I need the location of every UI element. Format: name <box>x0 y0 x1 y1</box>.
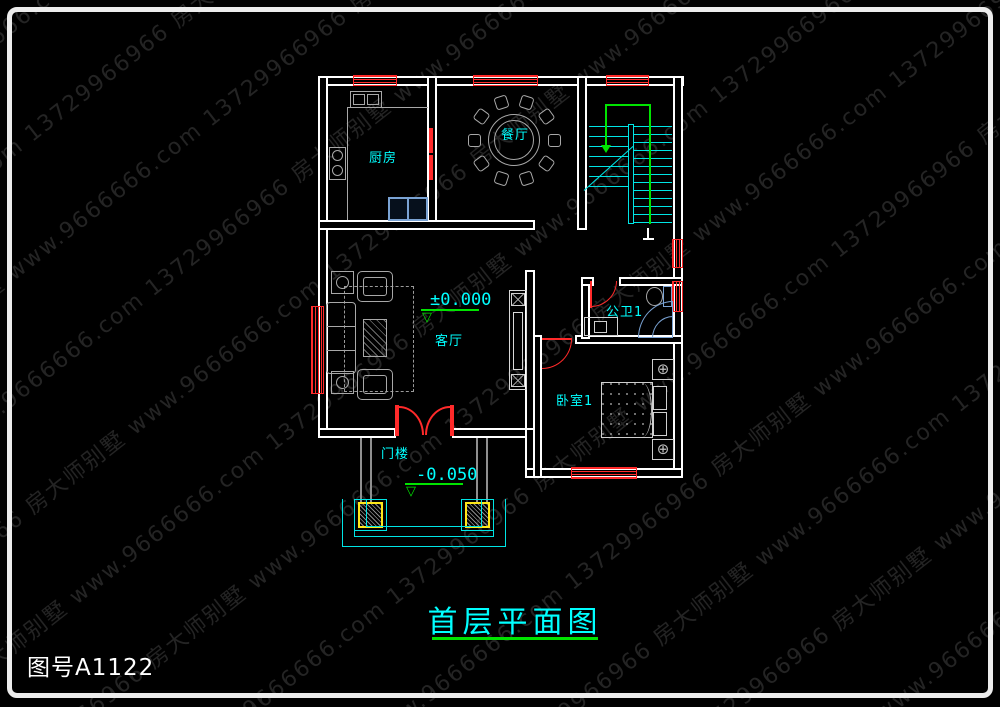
stove-burner <box>332 150 343 161</box>
dining-chair <box>537 107 555 125</box>
bath-vanity-basin <box>594 321 607 333</box>
entrance-door-right-leaf <box>450 405 454 436</box>
porch-column-guide <box>370 438 372 502</box>
dining-chair <box>472 154 490 172</box>
nightstand-lamp: ⊕ <box>652 439 674 460</box>
window-kitchen-top <box>353 75 397 86</box>
wall-kitchen-bottom <box>318 220 535 230</box>
window-bedroom-bottom <box>571 467 637 479</box>
kitchen-sink-basin <box>367 94 379 105</box>
sofa-cushion-line <box>326 326 356 327</box>
dining-chair <box>472 107 490 125</box>
floorplan-canvas: www.9666666.com 13729966966 房大师别墅 www.96… <box>0 0 1000 707</box>
room-label-bedroom: 卧室1 <box>556 390 593 409</box>
stove-burner <box>332 165 343 176</box>
room-label-living: 客厅 <box>435 330 463 349</box>
watermark-text: www.9666666.com 13729966966 房大师别墅 www.96… <box>0 0 893 649</box>
dining-chair <box>518 94 534 110</box>
stair-stringer <box>628 124 634 224</box>
wall-bedroom-left <box>533 335 542 478</box>
elevation-porch-triangle: ▽ <box>406 485 416 498</box>
sofa-cushion-line <box>326 350 356 351</box>
window-stair-top <box>606 75 649 86</box>
nightstand-lamp: ⊕ <box>652 359 674 380</box>
sofa-three-seat <box>326 302 356 374</box>
dining-chair <box>537 154 555 172</box>
stair-handrail-top <box>605 104 651 106</box>
bed-headboard <box>653 386 667 410</box>
drawing-number: 图号A1122 <box>27 648 154 682</box>
door-kitchen-opening <box>429 128 433 153</box>
porch-column-guide <box>360 438 362 502</box>
plant-swirl <box>336 376 349 389</box>
window-dining-top <box>473 75 538 86</box>
bedroom-door-arc <box>542 339 572 369</box>
wall-living-bottom-right <box>452 428 535 438</box>
wall-living-bottom-left <box>318 428 396 438</box>
stair-arrow-head <box>601 145 611 153</box>
armchair-bottom-cushion <box>363 375 387 394</box>
stair-handrail-leftdrop <box>605 104 607 146</box>
kitchen-sink-basin <box>353 94 365 105</box>
kitchen-counter-edge-v <box>347 107 348 220</box>
dining-chair <box>468 134 481 147</box>
entrance-door-right-arc <box>425 406 450 435</box>
watermark-text: www.9666666.com 13729966966 房大师别墅 www.96… <box>157 303 1000 707</box>
room-label-dining: 餐厅 <box>501 124 529 143</box>
window-stair-right <box>672 239 683 268</box>
wall-kitchen-dining-divider <box>427 76 437 230</box>
dining-chair <box>518 170 534 186</box>
dining-chair <box>493 94 509 110</box>
dining-chair <box>548 134 561 147</box>
watermark-text: www.9666666.com 13729966966 房大师别墅 www.96… <box>100 381 1000 707</box>
stair-treads-right <box>634 126 672 225</box>
elevation-porch: -0.050 <box>416 465 477 485</box>
plant-swirl <box>336 276 349 289</box>
drawing-title: 首层平面图 <box>425 597 605 641</box>
border-frame <box>7 7 993 698</box>
watermark-text: www.9666666.com 13729966966 房大师别墅 www.96… <box>0 0 832 479</box>
room-label-kitchen: 厨房 <box>369 147 397 166</box>
dining-chair <box>493 170 509 186</box>
kitchen-fridge-divider <box>407 197 409 221</box>
door-kitchen-opening <box>429 155 433 180</box>
tv-screen <box>513 312 523 370</box>
porch-step <box>342 499 506 547</box>
elevation-living: ±0.000 <box>430 290 491 310</box>
armchair-top-cushion <box>363 277 387 296</box>
window-living-left <box>311 306 324 394</box>
drawing-title-underline <box>432 637 598 640</box>
wall-stairwell-left <box>577 76 587 230</box>
window-bath-right <box>672 281 683 312</box>
stair-up-mark <box>643 238 654 240</box>
stair-handrail-rightdrop <box>649 104 651 224</box>
tv-cabinet-box <box>511 374 525 387</box>
entrance-door-left-arc <box>399 406 424 435</box>
coffee-table <box>363 319 387 357</box>
elevation-living-triangle: ▽ <box>422 311 432 324</box>
porch-column-guide <box>486 438 488 502</box>
room-label-porch: 门楼 <box>381 443 409 462</box>
bed-headboard <box>653 412 667 436</box>
tv-cabinet-box <box>511 293 525 306</box>
